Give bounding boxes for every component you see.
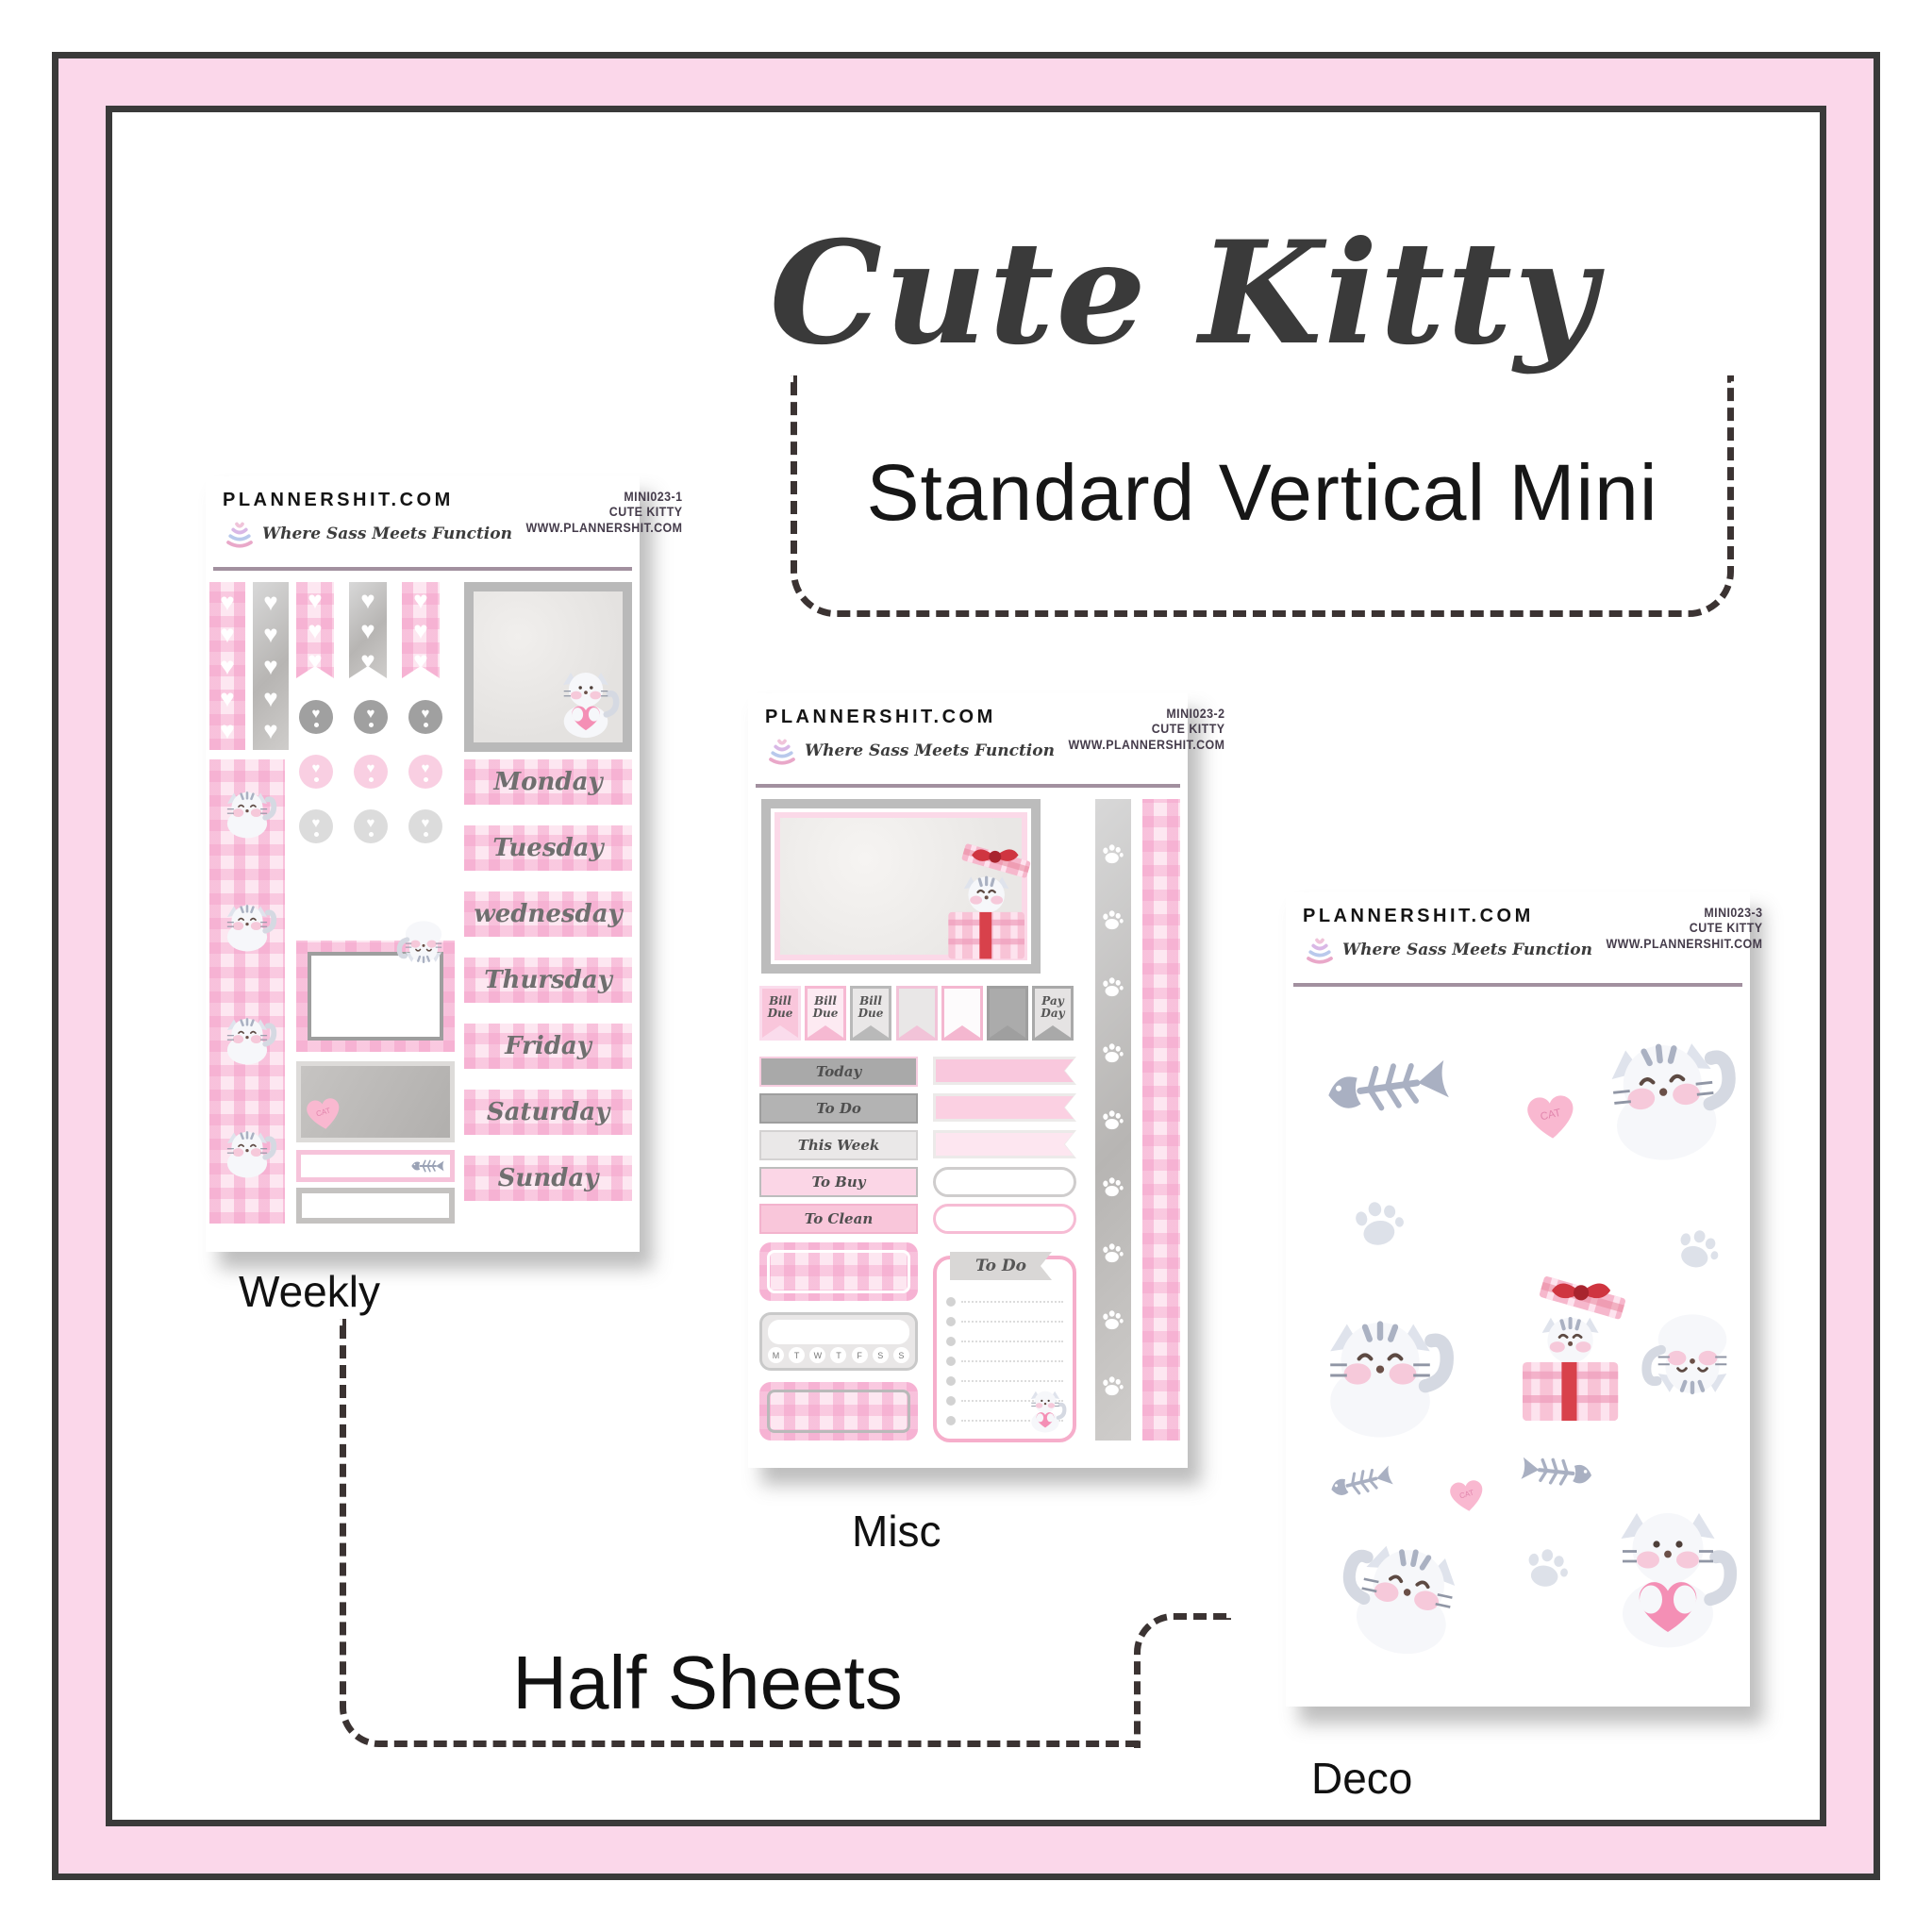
heart-icon: ♥ [220,654,234,678]
plaid-frame-box-sticker [296,941,455,1052]
paw-icon [1101,1307,1125,1332]
paw-icon [1101,841,1125,866]
heart-icon: ♥ [220,718,234,742]
todo-checklist-sticker: To Do [933,1256,1076,1442]
heart-icon: ♥ [413,648,427,673]
paw-washi-strip [1095,799,1131,1441]
group-label: Half Sheets [420,1640,995,1726]
cat-candy-heart-icon: CAT [300,1091,346,1135]
heart-dot-sticker: ♥ [299,700,333,734]
paw-icon [1101,974,1125,999]
paw-icon [1669,1219,1728,1278]
habit-tracker-sticker: M T W T F S S [759,1312,918,1371]
to-do-label-sticker: To Do [759,1093,918,1124]
heart-icon: ♥ [360,618,375,642]
ribbon-sticker [933,1057,1076,1085]
day-header-tuesday: Tuesday [464,825,632,871]
fishbone-icon [1324,1456,1400,1508]
product-graphic: Cute Kitty Standard Vertical Mini Half S… [0,0,1932,1932]
weekday-letter: T [789,1347,805,1363]
heart-icon: ♥ [263,654,277,678]
heart-icon: ♥ [413,618,427,642]
sheet-body: ♥♥♥♥♥ ♥♥♥♥♥ ♥♥♥ ♥♥♥ ♥♥♥ ♥ ♥ ♥ ♥ ♥ ♥ ♥ ♥ [206,476,640,1252]
today-label-sticker: Today [759,1057,918,1087]
bill-due-flag: Bill Due [805,986,846,1041]
heart-flag-pink-2: ♥♥♥ [402,582,440,678]
heart-icon: ♥ [308,588,322,612]
paw-icon [1101,1041,1125,1065]
fishbone-icon [1320,1044,1460,1130]
heart-dot-sticker: ♥ [299,755,333,789]
deco-sticker-sheet: PLANNERSHIT.COM Where Sass Meets Functio… [1286,892,1750,1707]
heart-icon: ♥ [220,590,234,614]
cat-candy-heart-icon: CAT [1520,1086,1583,1145]
blank-flag [941,986,983,1041]
upside-down-kitty-icon [1641,1283,1744,1441]
plaid-rounded-sticker [759,1382,918,1441]
weekday-letter: W [809,1347,825,1363]
heart-dot-sticker: ♥ [354,755,388,789]
blank-flag [896,986,938,1041]
heart-dot-sticker: ♥ [354,700,388,734]
photo-box-sticker [761,799,1041,974]
deco-sheet-label: Deco [1311,1753,1412,1804]
page-title: Cute Kitty [708,184,1660,404]
fishbone-icon [410,1157,446,1175]
fishbone-label-box-sticker [296,1150,455,1182]
heart-icon: ♥ [263,718,277,742]
weekday-letter: F [852,1347,868,1363]
this-week-label-sticker: This Week [759,1130,918,1160]
day-header-saturday: Saturday [464,1090,632,1135]
heart-icon: ♥ [360,648,375,673]
heart-icon: ♥ [413,588,427,612]
paw-icon [1101,1374,1125,1398]
bill-due-flag: Bill Due [850,986,891,1041]
heart-dot-sticker: ♥ [408,809,442,843]
ribbon-sticker [933,1130,1076,1158]
weekday-letter: M [768,1347,784,1363]
day-header-friday: Friday [464,1024,632,1069]
to-clean-label-sticker: To Clean [759,1204,918,1234]
weekday-letter: T [830,1347,846,1363]
heart-washi-pink: ♥♥♥♥♥ [209,582,245,750]
heart-icon: ♥ [263,686,277,710]
bill-due-flag: Bill Due [759,986,801,1041]
connector-path-right [1134,1613,1231,1748]
page-subtitle: Standard Vertical Mini [866,447,1657,539]
heart-icon: ♥ [360,588,375,612]
heart-icon: ♥ [308,648,322,673]
photo-box-sticker [464,582,632,752]
heart-icon: ♥ [308,618,322,642]
sheet-body: Bill Due Bill Due Bill Due Pay Day Today… [748,693,1188,1468]
subtitle-box: Standard Vertical Mini [791,375,1734,617]
weekly-sticker-sheet: PLANNERSHIT.COM Where Sass Meets Functio… [206,476,640,1252]
kitty-hugging-heart-icon [1024,1386,1067,1435]
paw-icon [1101,1241,1125,1265]
heart-flag-gray: ♥♥♥ [349,582,387,678]
kitty-face-icon [217,893,277,954]
kitty-in-gift-icon [931,836,1035,966]
day-header-sunday: Sunday [464,1156,632,1201]
to-buy-label-sticker: To Buy [759,1167,918,1197]
kitty-face-icon [217,1007,277,1067]
heart-icon: ♥ [263,590,277,614]
pill-box-sticker [933,1167,1076,1197]
gray-label-box-sticker [296,1188,455,1224]
tabby-kitty-icon [1305,1289,1456,1447]
cat-washi-strip [209,759,285,1224]
misc-sticker-sheet: PLANNERSHIT.COM Where Sass Meets Functio… [748,693,1188,1468]
heart-icon: ♥ [220,622,234,646]
weekly-sheet-label: Weekly [239,1266,380,1317]
paw-icon [1101,1174,1125,1199]
gray-photo-box-sticker: CAT [296,1061,455,1142]
weekday-letter: S [873,1347,889,1363]
heart-dot-sticker: ♥ [299,809,333,843]
pill-box-sticker [933,1204,1076,1234]
kitty-face-icon [217,780,277,841]
heart-dot-sticker: ♥ [408,700,442,734]
pouncing-kitty-icon [1321,1508,1495,1674]
plaid-rounded-sticker [759,1242,918,1301]
heart-washi-gray: ♥♥♥♥♥ [253,582,289,750]
heart-dot-sticker: ♥ [408,755,442,789]
heart-icon: ♥ [220,686,234,710]
heart-flag-pink: ♥♥♥ [296,582,334,678]
day-header-thursday: Thursday [464,958,632,1003]
plaid-washi-strip [1142,799,1180,1441]
cat-candy-heart-icon: CAT [1443,1473,1490,1518]
sheet-body: CAT [1286,892,1750,1707]
todo-title: To Do [950,1252,1052,1280]
paw-icon [1347,1190,1413,1256]
kitty-hugging-heart-icon [551,665,621,741]
paw-icon [1521,1541,1576,1596]
heart-icon: ♥ [263,622,277,646]
pay-day-flag: Pay Day [1032,986,1074,1041]
paw-icon [1101,908,1125,932]
kitty-face-icon [217,1120,277,1180]
kitty-in-gift-icon [1501,1258,1631,1438]
fishbone-icon [1515,1447,1596,1496]
day-header-wednesday: wednesday [464,891,632,937]
day-header-monday: Monday [464,759,632,805]
kitty-hugging-heart-icon [1597,1494,1739,1657]
heart-dot-sticker: ♥ [354,809,388,843]
paw-icon [1101,1108,1125,1132]
misc-sheet-label: Misc [852,1506,941,1557]
weekday-letter: S [893,1347,909,1363]
peeking-kitty-icon [396,916,451,976]
blank-flag [987,986,1028,1041]
crouching-kitty-icon [1580,1003,1747,1178]
ribbon-sticker [933,1093,1076,1122]
